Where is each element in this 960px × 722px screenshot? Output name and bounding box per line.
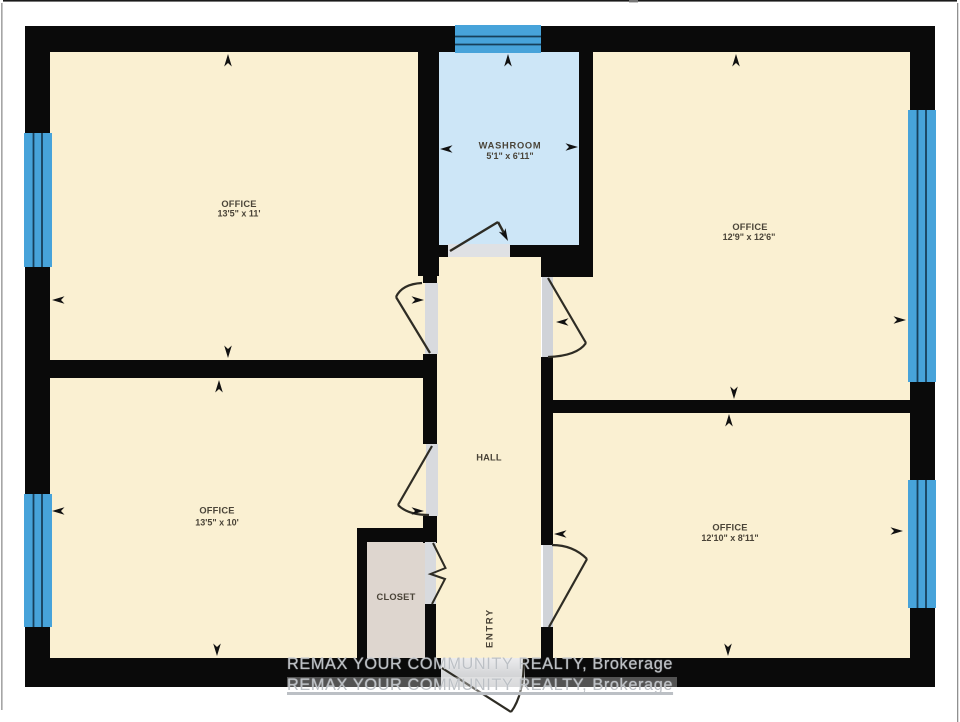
svg-text:WASHROOM: WASHROOM bbox=[479, 141, 542, 151]
svg-text:OFFICE: OFFICE bbox=[732, 222, 767, 232]
svg-text:13'5" x 11': 13'5" x 11' bbox=[217, 209, 260, 219]
svg-text:5'1" x 6'11": 5'1" x 6'11" bbox=[486, 151, 533, 161]
svg-text:12'10" x 8'11": 12'10" x 8'11" bbox=[701, 533, 758, 543]
svg-text:CLOSET: CLOSET bbox=[377, 592, 416, 602]
svg-text:OFFICE: OFFICE bbox=[221, 199, 256, 209]
svg-text:13'5" x 10': 13'5" x 10' bbox=[195, 518, 239, 528]
svg-text:OFFICE: OFFICE bbox=[712, 523, 747, 533]
svg-text:12'9" x 12'6": 12'9" x 12'6" bbox=[723, 232, 776, 242]
svg-text:OFFICE: OFFICE bbox=[199, 506, 234, 516]
svg-text:ENTRY: ENTRY bbox=[485, 608, 496, 648]
svg-text:HALL: HALL bbox=[476, 453, 502, 463]
